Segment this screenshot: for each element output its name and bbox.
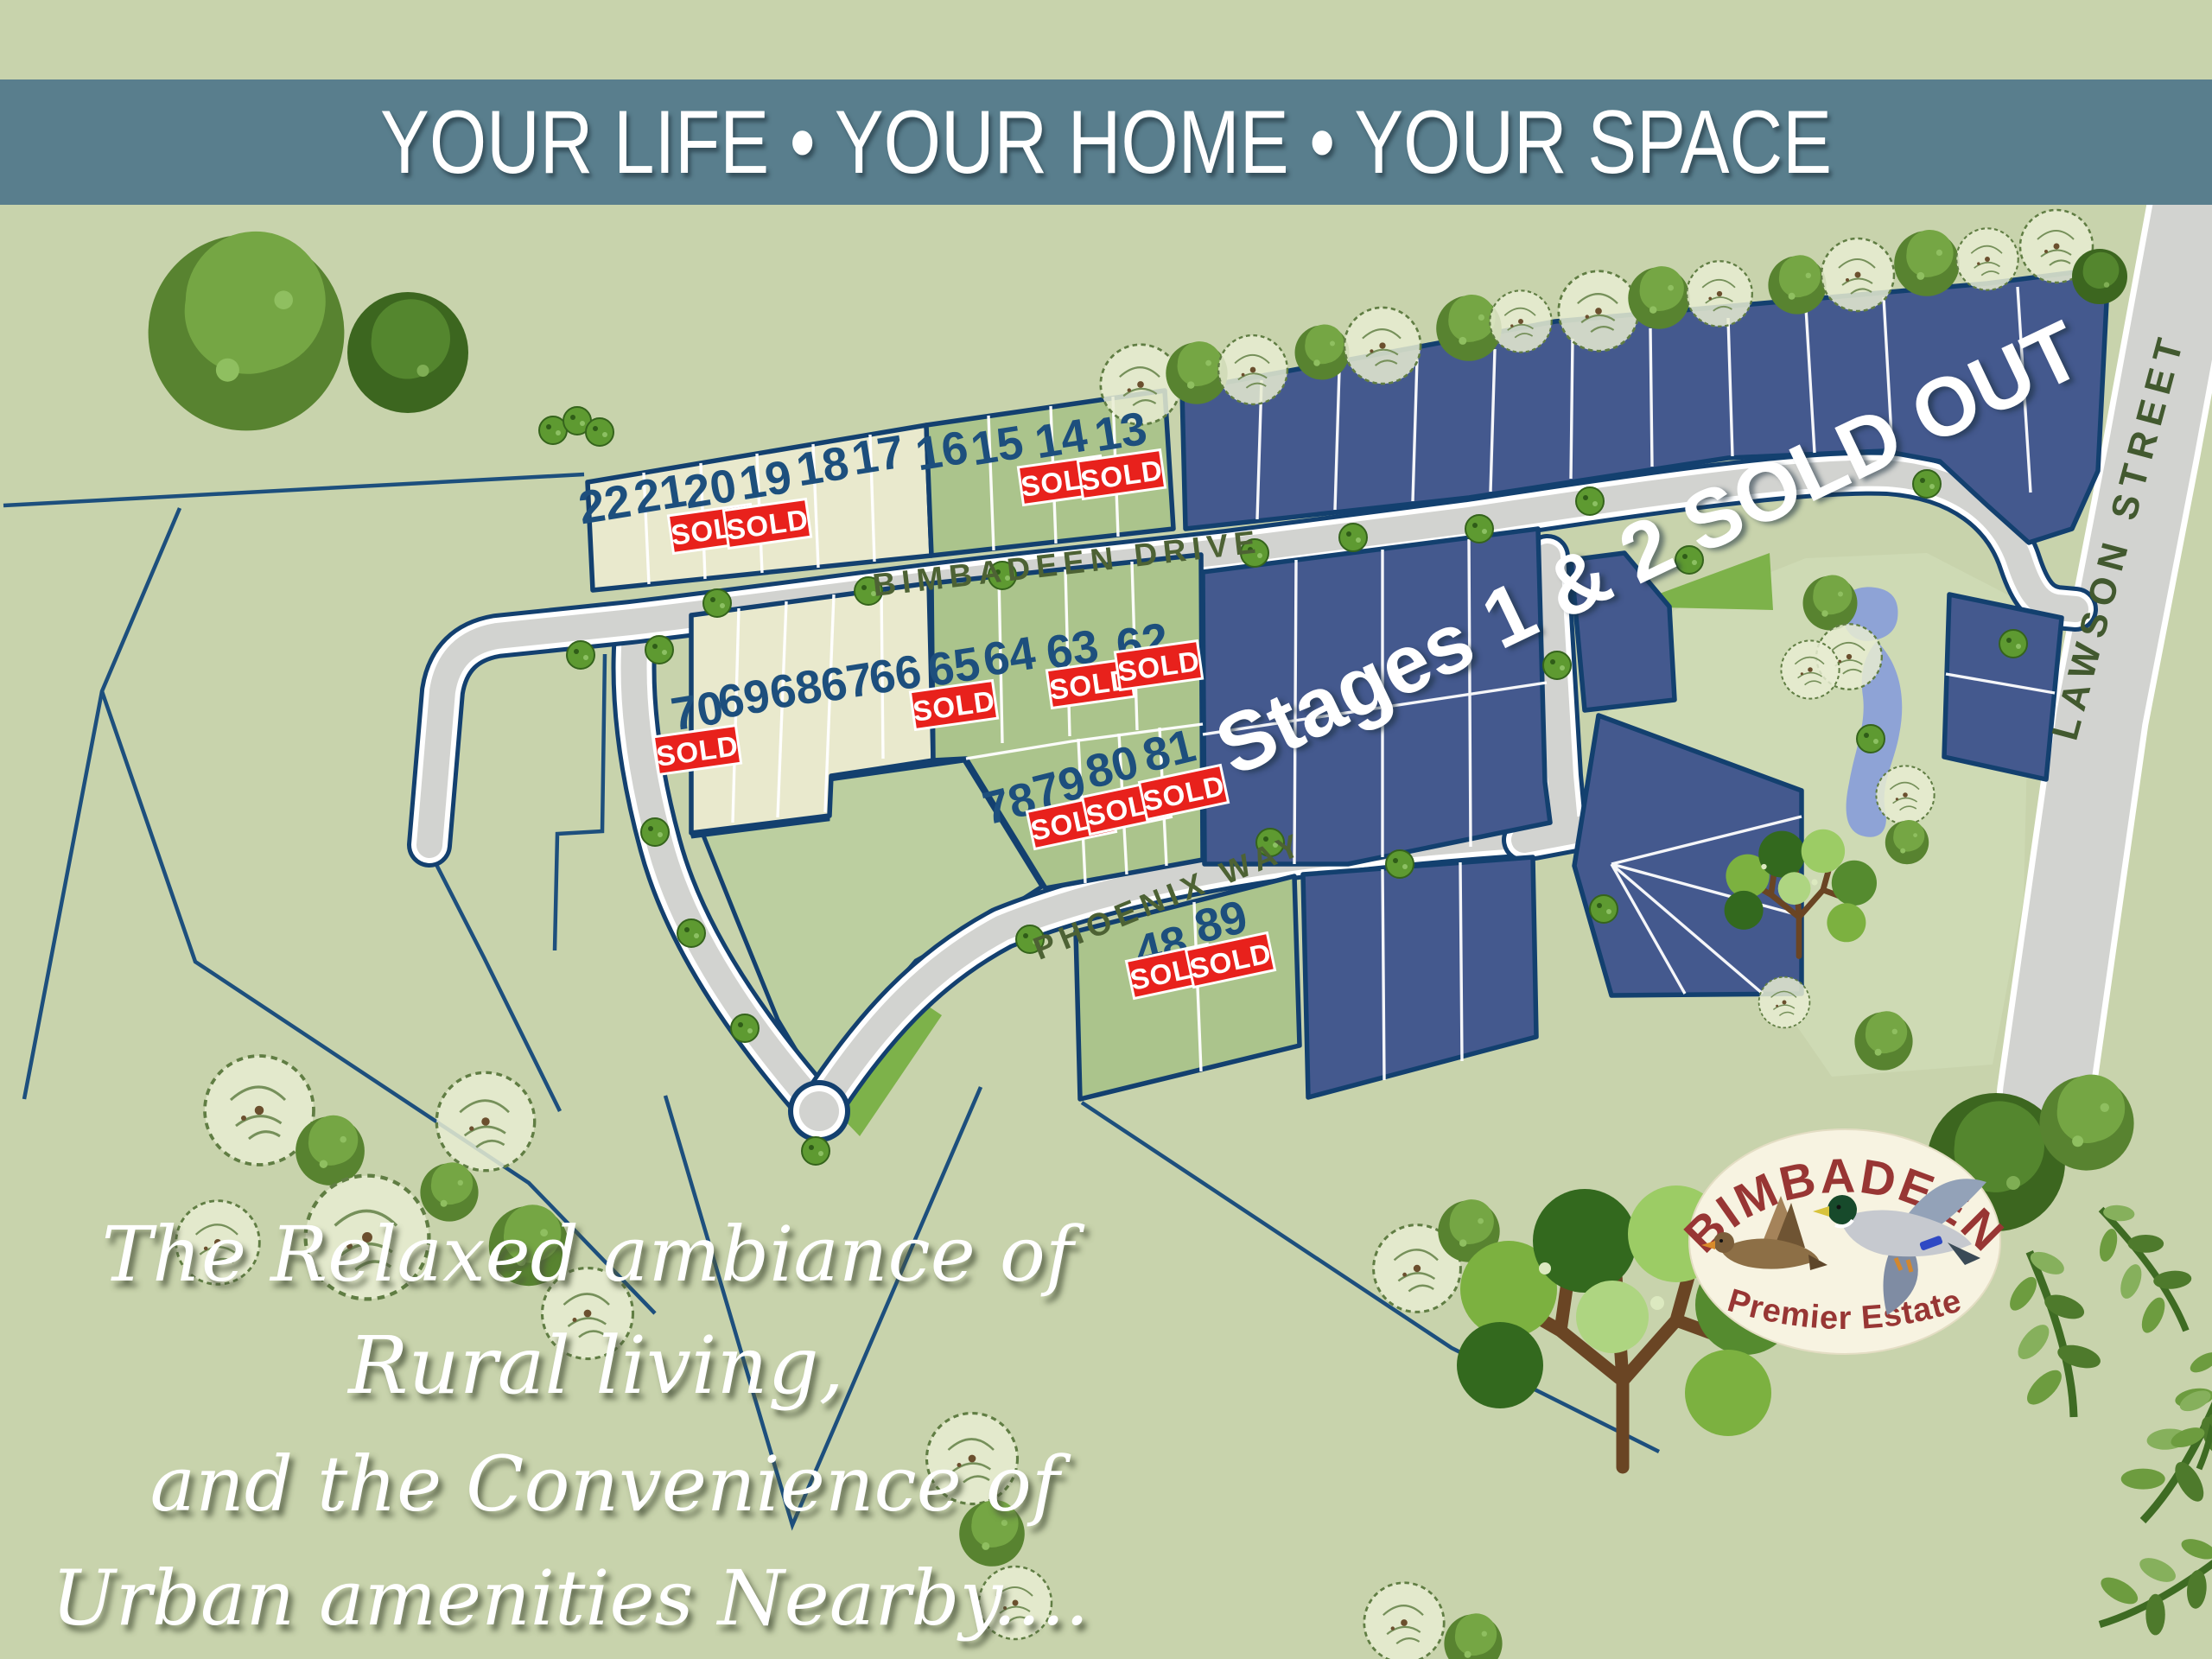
tree-icon: [703, 589, 731, 617]
tree-icon: [1876, 766, 1934, 823]
lot-number-16: 16: [912, 422, 972, 481]
tree-icon: [436, 1072, 534, 1170]
tree-icon: [1590, 895, 1618, 923]
tree-icon: [1559, 271, 1638, 351]
tagline-line-3: and the Convenience of: [150, 1440, 1071, 1529]
tree-icon: [1339, 524, 1367, 551]
tree-icon: [1956, 228, 2018, 289]
tree-icon: [645, 636, 673, 664]
tree-icon: [1913, 470, 1941, 498]
tree-icon: [677, 919, 705, 947]
tree-icon: [1490, 290, 1551, 352]
tagline-line-1: The Relaxed ambiance of: [102, 1210, 1085, 1299]
tree-icon: [731, 1014, 759, 1042]
tree-icon: [347, 292, 468, 413]
tree-icon: [1576, 487, 1604, 515]
tree-icon: [1386, 850, 1414, 878]
lot-number-64: 64: [980, 627, 1039, 687]
tree-icon: [1364, 1583, 1444, 1659]
tree-icon: [1759, 977, 1810, 1028]
tree-icon: [641, 818, 669, 846]
lot-number-18: 18: [793, 437, 853, 497]
stage-block-east: [1944, 594, 2062, 779]
estate-flyer: BIMBADEEN DRIVE PHOENIX WAY LAWSON STREE…: [0, 0, 2212, 1659]
tree-icon: [1344, 308, 1421, 384]
banner: YOUR LIFE • YOUR HOME • YOUR SPACE: [0, 79, 2212, 205]
tree-icon: [1821, 238, 1894, 311]
lot-number-68: 68: [766, 660, 826, 720]
banner-title: YOUR LIFE • YOUR HOME • YOUR SPACE: [380, 92, 1832, 193]
tree-icon: [1465, 515, 1493, 543]
tree-icon: [586, 418, 613, 446]
lot-number-22: 22: [575, 475, 635, 535]
lot-number-17: 17: [849, 426, 908, 486]
tree-icon: [567, 641, 594, 669]
tree-icon: [1781, 640, 1839, 698]
tree-icon: [1543, 652, 1571, 679]
tree-icon: [802, 1137, 829, 1165]
estate-map-svg: BIMBADEEN DRIVE PHOENIX WAY LAWSON STREE…: [0, 0, 2212, 1659]
tree-icon: [1687, 261, 1752, 327]
tree-icon: [1999, 630, 2027, 658]
tree-icon: [1857, 725, 1885, 753]
lot-number-69: 69: [715, 670, 774, 729]
tagline-line-4: Urban amenities Nearby....: [51, 1554, 1089, 1643]
tree-icon: [1218, 335, 1287, 404]
tree-icon: [2072, 249, 2127, 304]
tagline-line-2: Rural living,: [346, 1319, 844, 1412]
